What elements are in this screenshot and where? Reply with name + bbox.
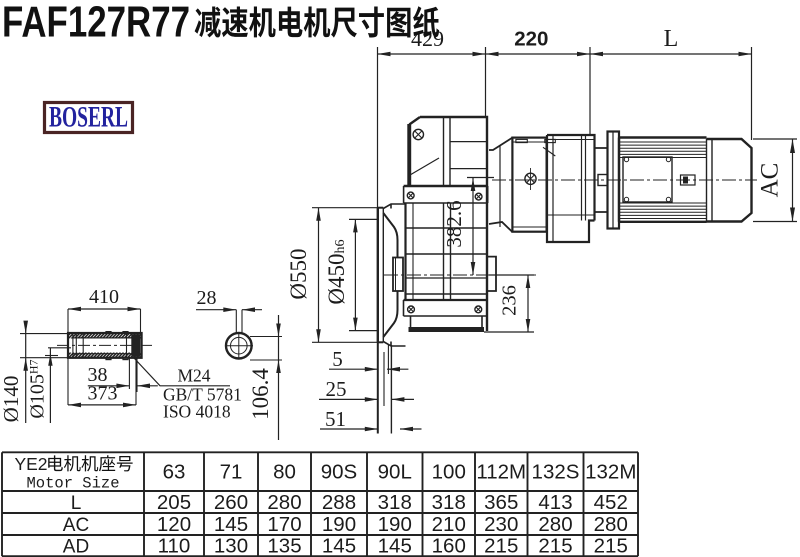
svg-text:Ø450h6: Ø450h6 (324, 239, 349, 304)
svg-text:410: 410 (89, 286, 119, 308)
svg-text:230: 230 (484, 513, 518, 536)
svg-text:236: 236 (499, 285, 521, 316)
svg-text:190: 190 (322, 513, 356, 536)
svg-text:215: 215 (484, 535, 518, 557)
svg-text:280: 280 (538, 513, 572, 536)
svg-text:132S: 132S (532, 461, 580, 484)
svg-text:160: 160 (432, 535, 466, 557)
svg-text:106.4: 106.4 (248, 368, 273, 420)
svg-text:145: 145 (322, 535, 356, 557)
svg-text:Motor Size: Motor Size (26, 475, 119, 493)
svg-text:M24: M24 (177, 366, 210, 386)
svg-text:215: 215 (594, 535, 628, 557)
svg-text:L: L (71, 493, 82, 514)
svg-text:25: 25 (326, 377, 347, 401)
svg-text:318: 318 (432, 491, 466, 514)
svg-text:90S: 90S (321, 461, 357, 484)
svg-text:L: L (664, 26, 679, 52)
svg-text:132M: 132M (585, 461, 636, 484)
svg-text:Ø550: Ø550 (286, 248, 311, 299)
svg-text:145: 145 (214, 513, 248, 536)
svg-text:205: 205 (157, 491, 191, 514)
svg-text:BOSERL: BOSERL (49, 100, 128, 133)
svg-text:429: 429 (411, 26, 444, 51)
svg-text:120: 120 (157, 513, 191, 536)
svg-text:28: 28 (197, 287, 217, 309)
svg-text:5: 5 (332, 347, 343, 371)
svg-text:130: 130 (214, 535, 248, 557)
svg-text:280: 280 (594, 513, 628, 536)
svg-text:260: 260 (214, 491, 248, 514)
svg-text:80: 80 (273, 461, 296, 484)
svg-text:135: 135 (267, 535, 301, 557)
svg-text:51: 51 (325, 407, 346, 431)
svg-text:190: 190 (378, 513, 412, 536)
svg-text:110: 110 (158, 535, 191, 557)
svg-text:318: 318 (378, 491, 412, 514)
svg-text:Ø105H7: Ø105H7 (27, 359, 49, 418)
svg-text:373: 373 (88, 383, 118, 405)
svg-text:112M: 112M (476, 461, 526, 484)
svg-text:AC: AC (63, 515, 89, 536)
svg-text:145: 145 (378, 535, 412, 557)
svg-text:Ø140: Ø140 (0, 376, 23, 423)
svg-text:280: 280 (267, 491, 301, 514)
svg-text:170: 170 (267, 513, 301, 536)
svg-text:100: 100 (432, 461, 466, 484)
svg-text:220: 220 (514, 28, 548, 51)
svg-text:FAF127R77: FAF127R77 (2, 0, 190, 47)
svg-text:288: 288 (322, 491, 356, 514)
svg-text:71: 71 (220, 461, 243, 484)
svg-text:365: 365 (484, 491, 518, 514)
svg-text:YE2: YE2 (14, 454, 47, 474)
svg-text:ISO 4018: ISO 4018 (163, 402, 231, 422)
svg-text:90L: 90L (378, 461, 412, 484)
svg-text:AC: AC (757, 163, 784, 198)
svg-text:413: 413 (538, 491, 572, 514)
svg-text:452: 452 (594, 491, 628, 514)
svg-text:382.6: 382.6 (442, 200, 466, 247)
svg-text:210: 210 (432, 513, 466, 536)
svg-text:63: 63 (163, 461, 186, 484)
svg-text:AD: AD (63, 537, 89, 557)
svg-text:215: 215 (538, 535, 572, 557)
